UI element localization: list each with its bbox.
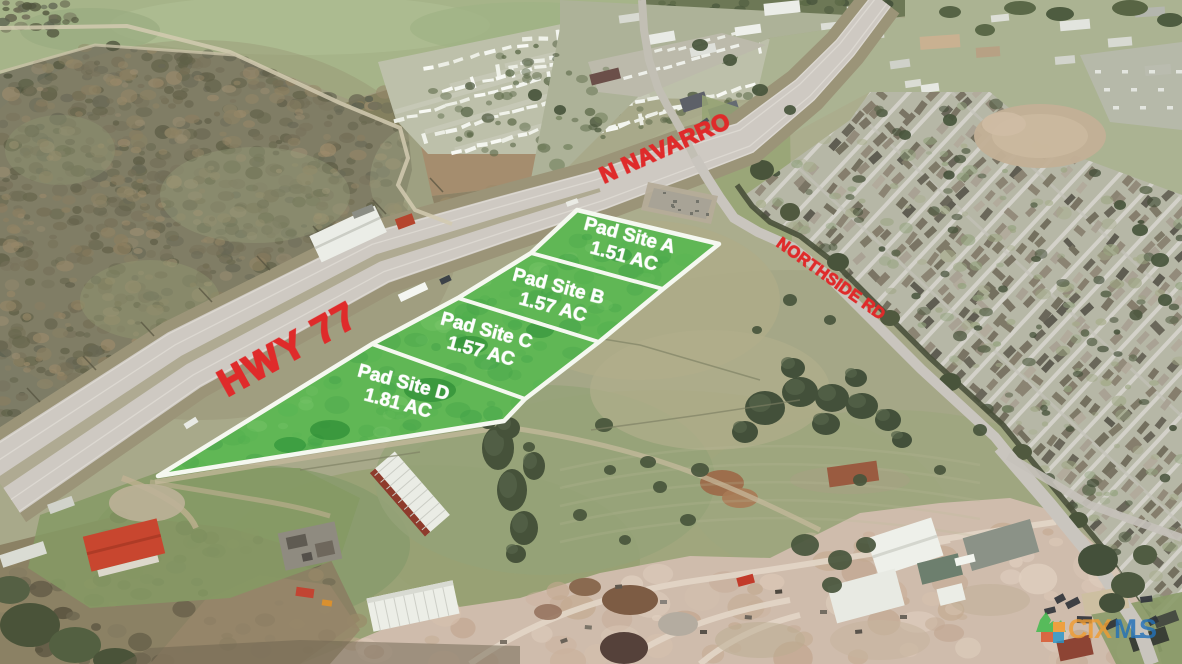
svg-text:CTX: CTX (1068, 614, 1112, 644)
svg-text:MLS: MLS (1114, 614, 1157, 644)
